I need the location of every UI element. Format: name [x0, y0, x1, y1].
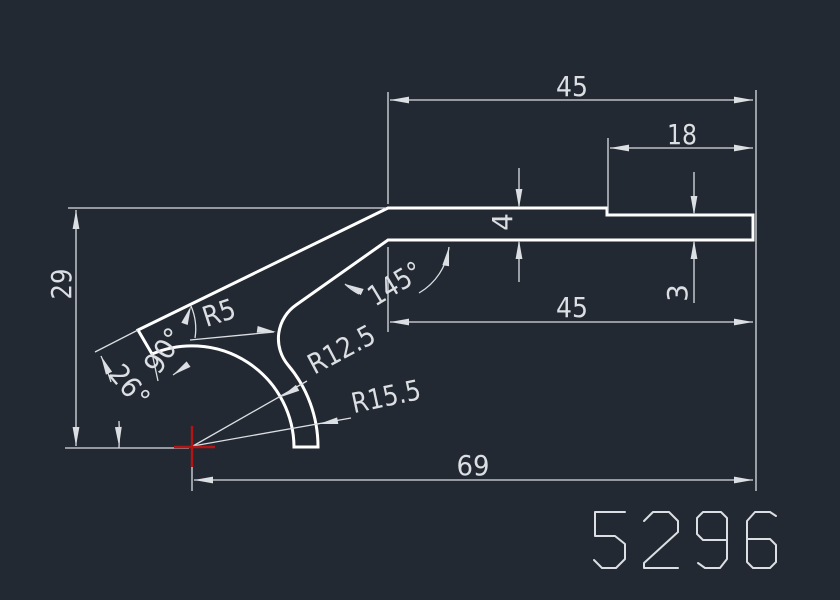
arrow-left-icon	[610, 145, 629, 152]
dimension-angle-bend: 145°	[344, 246, 453, 313]
arrow-left-icon	[194, 477, 213, 484]
dim-label-radius-outer: R15.5	[348, 373, 423, 420]
dimension-thickness-left: 4	[486, 168, 522, 282]
arrow-right-icon	[734, 319, 753, 326]
dimension-step-width: 18	[610, 118, 753, 151]
arrow-right-icon	[734, 477, 753, 484]
arrow-up-icon	[691, 240, 698, 259]
angle-arc-a	[191, 306, 196, 338]
dimension-thickness-right: 3	[661, 172, 697, 303]
arrow-down-icon	[73, 427, 80, 446]
dim-label-top-width: 45	[556, 70, 588, 103]
part-number-digit	[697, 512, 727, 568]
dim-label-height-left: 29	[45, 269, 78, 300]
arrow-down-icon	[516, 189, 523, 208]
arrow-right-icon	[734, 145, 753, 152]
dimension-top-width: 45	[390, 70, 753, 103]
part-number-digit	[644, 512, 678, 568]
arrow-icon	[115, 427, 122, 446]
dimension-total-width: 69	[194, 449, 753, 483]
arrow-up-icon	[516, 240, 523, 259]
cad-drawing-canvas: 45 18 45 69 29 4	[0, 0, 840, 600]
arrow-down-icon	[691, 196, 698, 215]
arrow-up-icon	[73, 210, 80, 229]
angle-arc-a	[419, 247, 449, 293]
dim-label-thickness-left: 4	[486, 213, 519, 231]
arrow-left-icon	[390, 97, 409, 104]
dim-label-total-width: 69	[457, 449, 490, 482]
part-number-digit	[747, 512, 776, 568]
dim-label-radius-inner: R12.5	[302, 318, 381, 381]
radius-outer-leader: R15.5	[193, 373, 424, 446]
arrow-right-icon	[734, 97, 753, 104]
part-number-digit	[594, 512, 625, 568]
dim-label-mid-width: 45	[556, 291, 588, 324]
leader-line	[190, 332, 274, 340]
dim-label-step-width: 18	[667, 118, 697, 151]
ext-line-arm-26	[95, 330, 138, 352]
drawing-svg: 45 18 45 69 29 4	[0, 0, 840, 600]
arrow-icon	[442, 246, 452, 266]
arc-center-mark	[174, 426, 215, 467]
dimension-height-left: 29	[45, 210, 79, 446]
part-outline	[138, 208, 753, 447]
dim-label-thickness-right: 3	[661, 284, 694, 302]
dim-label-angle-end: 90°	[137, 322, 191, 380]
dimension-mid-width: 45	[390, 291, 753, 325]
arrow-left-icon	[390, 319, 409, 326]
arrow-icon	[318, 417, 338, 427]
arrow-icon	[344, 281, 364, 295]
part-number	[594, 512, 776, 568]
dim-label-angle-bend: 145°	[362, 255, 429, 313]
